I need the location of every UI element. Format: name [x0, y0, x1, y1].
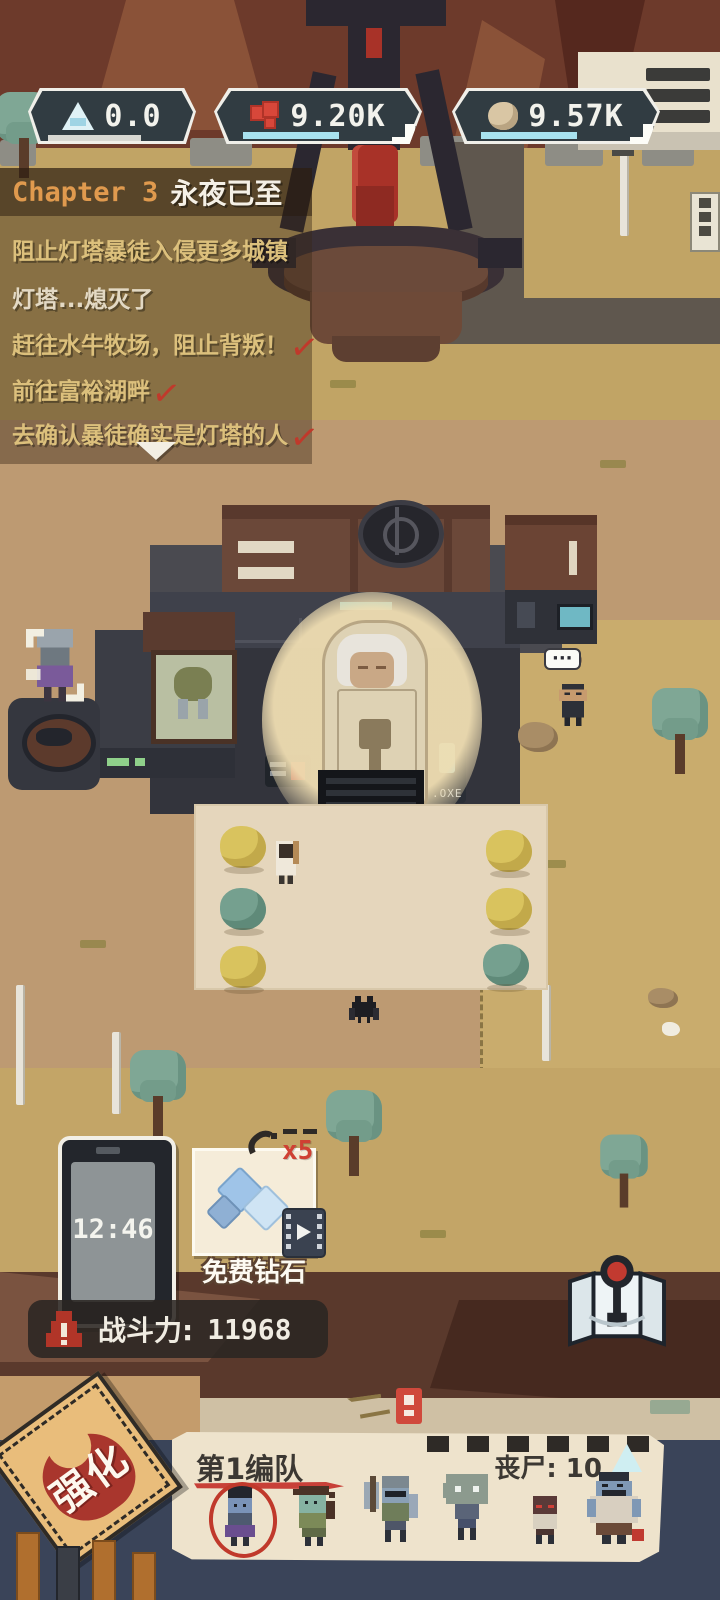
speech-dots: ··· — [552, 648, 573, 669]
dash — [303, 1129, 317, 1134]
grass-tuft — [420, 1230, 446, 1238]
phone-screen: 12:46 — [71, 1162, 155, 1302]
bird — [662, 1022, 680, 1036]
hologram-zombie — [26, 628, 84, 714]
quest-item: 前往富裕湖畔✓ — [12, 372, 181, 414]
bush-yellow — [220, 946, 266, 988]
chapter-label: Chapter 3 — [12, 177, 158, 208]
watch-ad-button[interactable] — [282, 1208, 326, 1258]
tower-red-vial — [366, 28, 382, 58]
resource-gems[interactable]: 9.20K — [214, 88, 422, 144]
quest-item: 阻止灯塔暴徒入侵更多城镇 — [12, 232, 290, 266]
quest-panel: Chapter 3 永夜已至 阻止灯塔暴徒入侵更多城镇 灯塔...熄灭了 赶往水… — [0, 168, 312, 464]
tower-foot — [332, 336, 440, 362]
white-pole — [112, 1032, 121, 1114]
street-lamp — [620, 152, 629, 236]
gems-value: 9.20K — [290, 99, 385, 134]
chapter-title: 永夜已至 — [170, 172, 282, 212]
bush-teal — [220, 888, 266, 930]
stone-value: 9.57K — [528, 99, 623, 134]
tree — [126, 1050, 190, 1136]
map-button[interactable] — [562, 1254, 672, 1348]
alert-marker — [396, 1388, 422, 1424]
signpost — [690, 192, 720, 252]
clock-time: 12:46 — [71, 1214, 155, 1245]
resource-energy[interactable]: 0.0 — [28, 88, 196, 144]
dash — [283, 1129, 297, 1134]
grass-tuft — [330, 380, 356, 388]
free-diamonds-label: 免费钻石 — [186, 1252, 322, 1289]
bush-yellow — [486, 888, 532, 930]
walker-character[interactable] — [270, 838, 302, 884]
combat-power-bar[interactable]: 战斗力: 11968 — [28, 1300, 328, 1358]
shed-console — [505, 590, 597, 644]
critter[interactable] — [346, 996, 382, 1026]
bush-teal — [483, 944, 529, 986]
tree — [597, 1134, 651, 1207]
squad-member[interactable] — [290, 1486, 338, 1546]
oldman-face — [350, 652, 394, 688]
tower-crossbar — [306, 0, 446, 26]
squad-member[interactable] — [584, 1472, 648, 1532]
quest-check: ✓ — [287, 326, 321, 370]
energy-value: 0.0 — [104, 99, 161, 134]
lab-hatch — [358, 500, 444, 568]
grass-tuft — [80, 940, 106, 948]
white-pole — [16, 985, 25, 1105]
bush-yellow — [486, 830, 532, 872]
squad-panel[interactable]: 第1编队 丧尸: 10 — [172, 1432, 664, 1562]
fence-post — [16, 1532, 40, 1600]
fence-post — [132, 1552, 156, 1600]
reward-multiplier: x5 — [282, 1136, 313, 1166]
bush-yellow — [220, 826, 266, 868]
quest-item: 灯塔...熄灭了 — [12, 280, 155, 314]
squad-title: 第1编队 — [196, 1446, 303, 1488]
rock — [518, 722, 558, 752]
npc-character[interactable] — [556, 684, 590, 726]
dirt-road-horizontal — [440, 298, 720, 344]
tower-wing — [478, 238, 522, 268]
phone-speaker — [96, 1147, 120, 1154]
fence-post — [92, 1540, 116, 1600]
gem-icon — [250, 101, 280, 131]
power-icon — [44, 1309, 84, 1349]
resource-stone[interactable]: 9.57K — [452, 88, 660, 144]
specimen-machine[interactable] — [95, 630, 235, 778]
iceberg-icon — [612, 1444, 642, 1472]
quest-header: Chapter 3 永夜已至 — [0, 168, 312, 216]
stone-icon — [488, 102, 518, 130]
sage-bush — [650, 1400, 690, 1414]
fence-post — [56, 1546, 80, 1600]
rock — [648, 988, 678, 1008]
squad-member[interactable] — [440, 1474, 488, 1534]
squad-member[interactable] — [524, 1496, 572, 1556]
squad-member[interactable] — [216, 1486, 264, 1546]
tree — [648, 688, 712, 774]
combat-power-label: 战斗力: — [98, 1309, 193, 1349]
collapse-quests-chevron-icon[interactable] — [136, 442, 176, 460]
iceberg-icon — [62, 102, 94, 130]
quest-check: ✓ — [287, 416, 321, 460]
menu-icon — [646, 68, 710, 81]
npc-speech-bubble[interactable]: ··· — [544, 648, 581, 670]
game-screen: .OXE — [0, 0, 720, 1600]
combat-power-value: 11968 — [207, 1313, 291, 1346]
tree — [322, 1090, 386, 1176]
white-pole — [542, 985, 551, 1061]
quest-item: 赶往水牛牧场，阻止背叛！✓ — [12, 326, 319, 368]
hook-icon — [247, 1129, 281, 1159]
grass-tuft — [600, 460, 626, 468]
quest-check: ✓ — [149, 372, 183, 416]
squad-member[interactable] — [364, 1476, 412, 1536]
